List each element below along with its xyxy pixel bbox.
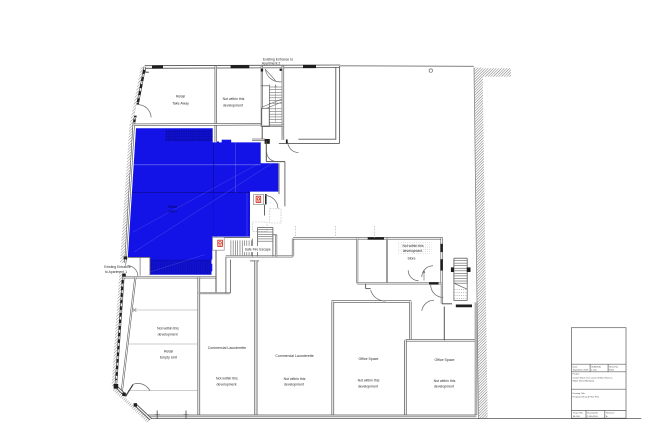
svg-text:Corner Street, The Corner of B: Corner Street, The Corner of Blue Street…: [573, 376, 613, 379]
svg-text:development: development: [158, 332, 178, 336]
svg-text:E101: E101: [609, 370, 615, 372]
svg-text:Not within this: Not within this: [284, 377, 306, 381]
svg-text:Not within this: Not within this: [223, 97, 245, 101]
svg-text:Office Space: Office Space: [359, 357, 379, 361]
svg-text:development: development: [284, 383, 304, 387]
svg-text:development: development: [403, 249, 422, 253]
svg-text:development: development: [434, 385, 454, 389]
svg-text:Safe Fire Escape: Safe Fire Escape: [245, 247, 271, 251]
svg-text:Store: Store: [407, 257, 415, 261]
svg-text:Retail: Retail: [168, 205, 177, 209]
svg-text:Not within this: Not within this: [216, 377, 238, 381]
svg-text:Take Away: Take Away: [172, 102, 189, 106]
svg-text:Proposed Ground Floor Plan: Proposed Ground Floor Plan: [573, 396, 600, 399]
svg-text:Not within this: Not within this: [402, 244, 423, 248]
svg-text:development: development: [223, 104, 243, 108]
svg-text:Commercial Launderette: Commercial Launderette: [208, 346, 246, 350]
svg-text:Drawing No.: Drawing No.: [587, 412, 599, 415]
svg-text:Not within this: Not within this: [358, 379, 380, 383]
svg-text:Project No.: Project No.: [573, 412, 584, 415]
svg-text:Project:: Project:: [573, 373, 580, 376]
svg-text:Maker Street Blackpool: Maker Street Blackpool: [573, 380, 595, 383]
svg-text:Date:: Date:: [573, 365, 578, 368]
svg-text:BL-100: BL-100: [573, 416, 581, 418]
svg-text:1:100: 1:100: [591, 370, 597, 372]
svg-text:2-100-2010: 2-100-2010: [587, 416, 598, 418]
svg-text:Sheet No.: Sheet No.: [609, 365, 619, 368]
svg-text:Drawing Title:: Drawing Title:: [573, 392, 586, 395]
svg-text:September 2018: September 2018: [573, 369, 589, 372]
svg-text:Not within this: Not within this: [434, 379, 456, 383]
svg-text:Commercial Launderette: Commercial Launderette: [275, 354, 313, 358]
svg-text:development: development: [358, 385, 378, 389]
svg-text:Office Space: Office Space: [435, 358, 455, 362]
svg-text:Existing Entrance to: Existing Entrance to: [263, 57, 293, 61]
svg-text:Unit 1: Unit 1: [168, 209, 177, 213]
svg-text:Apartment 2: Apartment 2: [262, 62, 281, 66]
svg-text:Retail: Retail: [176, 95, 185, 99]
svg-text:Not within this: Not within this: [157, 326, 179, 330]
svg-text:Empty Unit: Empty Unit: [160, 355, 177, 359]
svg-text:Revision:: Revision:: [606, 413, 615, 415]
svg-text:Retail: Retail: [164, 349, 173, 353]
svg-text:development: development: [216, 383, 236, 387]
svg-text:SCALE(S): SCALE(S): [591, 365, 601, 368]
svg-text:to Apartment 1: to Apartment 1: [105, 270, 127, 274]
svg-text:Existing Entrance: Existing Entrance: [104, 265, 130, 269]
